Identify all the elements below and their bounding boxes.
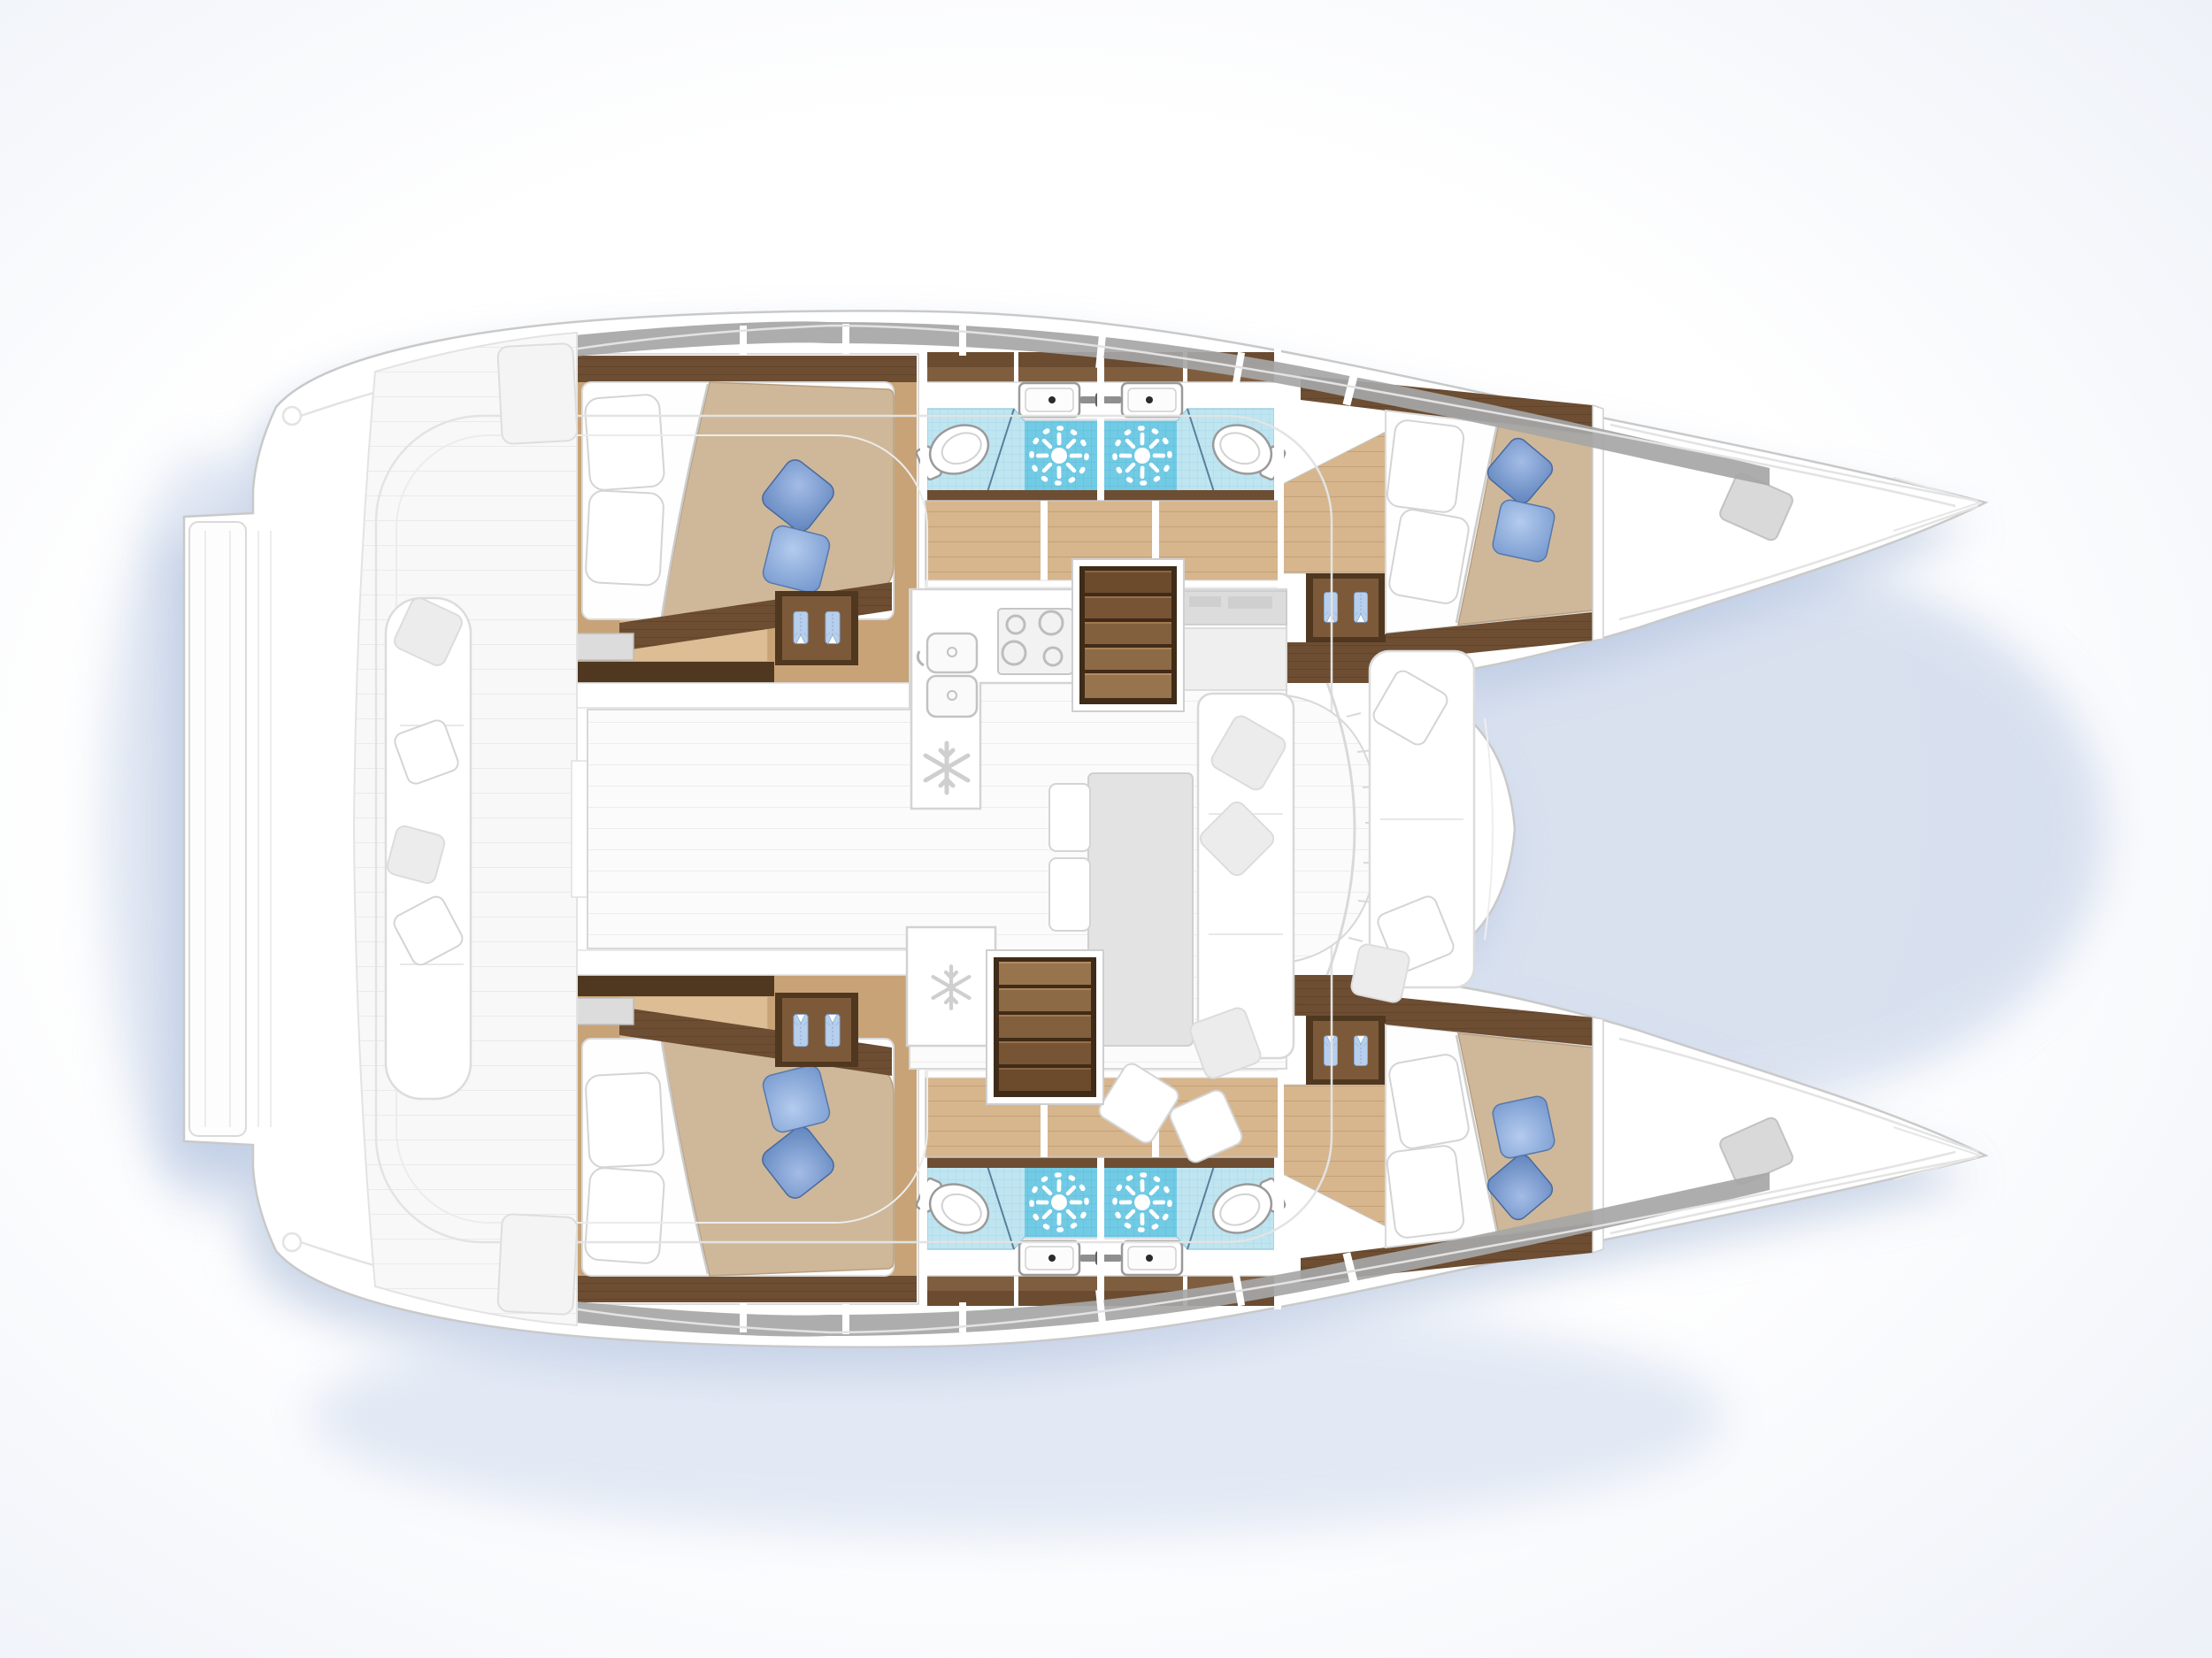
aft-crossbeam <box>189 522 246 1136</box>
cockpit-module <box>497 1214 578 1315</box>
fwd-cockpit <box>1350 651 1493 1003</box>
transom-beam <box>189 522 271 1136</box>
floorplan-page <box>0 0 2212 1658</box>
nav-station <box>1184 591 1286 690</box>
galley-freezer-unit <box>907 927 995 1046</box>
companionway-starboard <box>987 950 1103 1104</box>
stair-treads <box>1085 571 1171 698</box>
cockpit-module <box>497 343 578 444</box>
stair-treads <box>999 962 1091 1091</box>
salon-seat <box>1049 858 1090 931</box>
salon-seat <box>1049 784 1090 851</box>
stove-burners-icon <box>998 609 1072 674</box>
catamaran-floorplan <box>0 0 2212 1658</box>
companionway-port <box>1072 559 1184 711</box>
chart-table <box>1184 628 1286 690</box>
fwd-bench-pillow <box>1350 943 1411 1004</box>
